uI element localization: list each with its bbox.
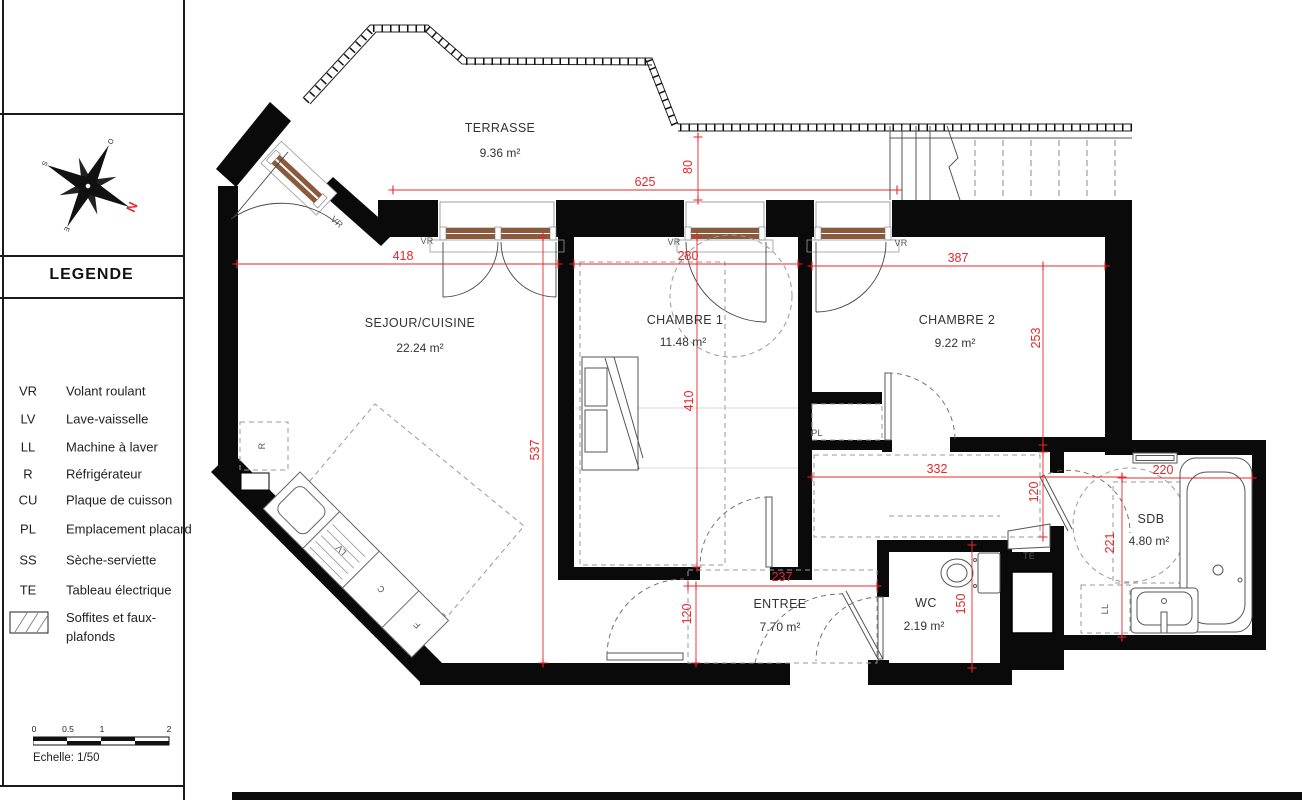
hatch-swatch-icon xyxy=(9,611,49,634)
dim-corridor-width: 332 xyxy=(927,462,948,476)
legend-code-ll: LL xyxy=(4,440,52,455)
legend-code-cu: CU xyxy=(4,493,52,508)
tag-washer: LL xyxy=(1100,604,1110,615)
panel-divider-1 xyxy=(0,113,184,115)
dim-sdb-door: 120 xyxy=(1027,482,1041,503)
legend-code-vr: VR xyxy=(4,384,52,399)
compass-rose xyxy=(10,118,170,258)
dim-wc-height: 150 xyxy=(954,594,968,615)
toilet xyxy=(941,553,1000,593)
towel-radiator xyxy=(1133,453,1177,463)
bed xyxy=(582,357,643,470)
dim-entree-width: 237 xyxy=(772,570,793,584)
dim-chambre1-width: 280 xyxy=(678,249,699,263)
terrace-railing xyxy=(303,25,1132,138)
room-label-chambre2: CHAMBRE 2 xyxy=(919,313,996,327)
dim-chambre1-height: 410 xyxy=(682,391,696,412)
tag-fridge: R xyxy=(257,443,267,450)
scale-caption: Echelle: 1/50 xyxy=(33,752,100,764)
room-label-terrasse: TERRASSE xyxy=(465,121,536,135)
legend-label-pl: Emplacement placard xyxy=(66,522,192,537)
dim-sdb-width: 220 xyxy=(1153,463,1174,477)
legend-label-soffites-1: Soffites et faux- xyxy=(66,609,156,627)
dim-chambre2-width: 387 xyxy=(948,251,969,265)
legend-label-vr: Volant roulant xyxy=(66,384,146,399)
bathroom-sink xyxy=(1131,588,1198,633)
dim-sdb-height: 221 xyxy=(1103,533,1117,554)
panel-divider-4 xyxy=(0,785,184,787)
legend-label-ll: Machine à laver xyxy=(66,440,158,455)
tag-vr-sejour: VR xyxy=(420,236,433,246)
legend-code-pl: PL xyxy=(4,522,52,537)
technical-shaft xyxy=(1012,572,1053,633)
dim-sejour-height: 537 xyxy=(528,440,542,461)
panel-right-border xyxy=(183,0,185,800)
room-area-entree: 7.70 m² xyxy=(760,620,801,634)
scale-tick-2: 2 xyxy=(167,724,172,734)
room-label-sejour: SEJOUR/CUISINE xyxy=(365,316,475,330)
tag-elec-board: TE xyxy=(1023,551,1035,561)
window-sejour xyxy=(430,202,564,297)
window-chambre2 xyxy=(807,202,899,312)
room-label-wc: WC xyxy=(915,596,937,610)
dim-sejour-width: 418 xyxy=(393,249,414,263)
legend-code-lv: LV xyxy=(4,412,52,427)
dim-entree-door: 120 xyxy=(680,604,694,625)
room-area-sdb: 4.80 m² xyxy=(1129,534,1170,548)
wall-notch xyxy=(241,473,269,490)
panel-divider-3 xyxy=(0,297,184,299)
scale-tick-1: 1 xyxy=(100,724,105,734)
legend-code-te: TE xyxy=(4,583,52,598)
scale-bar xyxy=(33,736,183,750)
dim-chambre2-height: 253 xyxy=(1029,328,1043,349)
room-label-sdb: SDB xyxy=(1138,512,1165,526)
floor-plan-drawing xyxy=(0,0,1302,800)
room-area-sejour: 22.24 m² xyxy=(396,341,443,355)
floorplan-page: TERRASSE 9.36 m² SEJOUR/CUISINE 22.24 m²… xyxy=(0,0,1302,800)
scale-tick-0: 0 xyxy=(32,724,37,734)
tag-vr-chambre1: VR xyxy=(667,237,680,247)
dim-terrace-gap: 80 xyxy=(681,160,695,174)
legend-label-cu: Plaque de cuisson xyxy=(66,493,172,508)
legend-code-ss: SS xyxy=(4,553,52,568)
kitchen-counter xyxy=(263,472,448,657)
room-area-chambre2: 9.22 m² xyxy=(935,336,976,350)
tag-vr-chambre2: VR xyxy=(894,238,907,248)
legend-label-te: Tableau électrique xyxy=(66,583,172,598)
legend-code-r: R xyxy=(4,467,52,482)
room-area-terrasse: 9.36 m² xyxy=(480,146,521,160)
room-area-wc: 2.19 m² xyxy=(904,619,945,633)
legend-label-r: Réfrigérateur xyxy=(66,467,142,482)
tag-placard: PL xyxy=(811,428,823,438)
legend-label-soffites-2: plafonds xyxy=(66,628,115,646)
room-label-chambre1: CHAMBRE 1 xyxy=(647,313,724,327)
legend-label-ss: Sèche-serviette xyxy=(66,553,156,568)
room-label-entree: ENTREE xyxy=(753,597,806,611)
room-area-chambre1: 11.48 m² xyxy=(660,335,706,349)
staircase xyxy=(890,126,1115,200)
legend-title: LEGENDE xyxy=(0,266,183,284)
dim-terrace-width: 625 xyxy=(635,175,656,189)
scale-tick-05: 0.5 xyxy=(62,724,74,734)
legend-label-lv: Lave-vaisselle xyxy=(66,412,148,427)
